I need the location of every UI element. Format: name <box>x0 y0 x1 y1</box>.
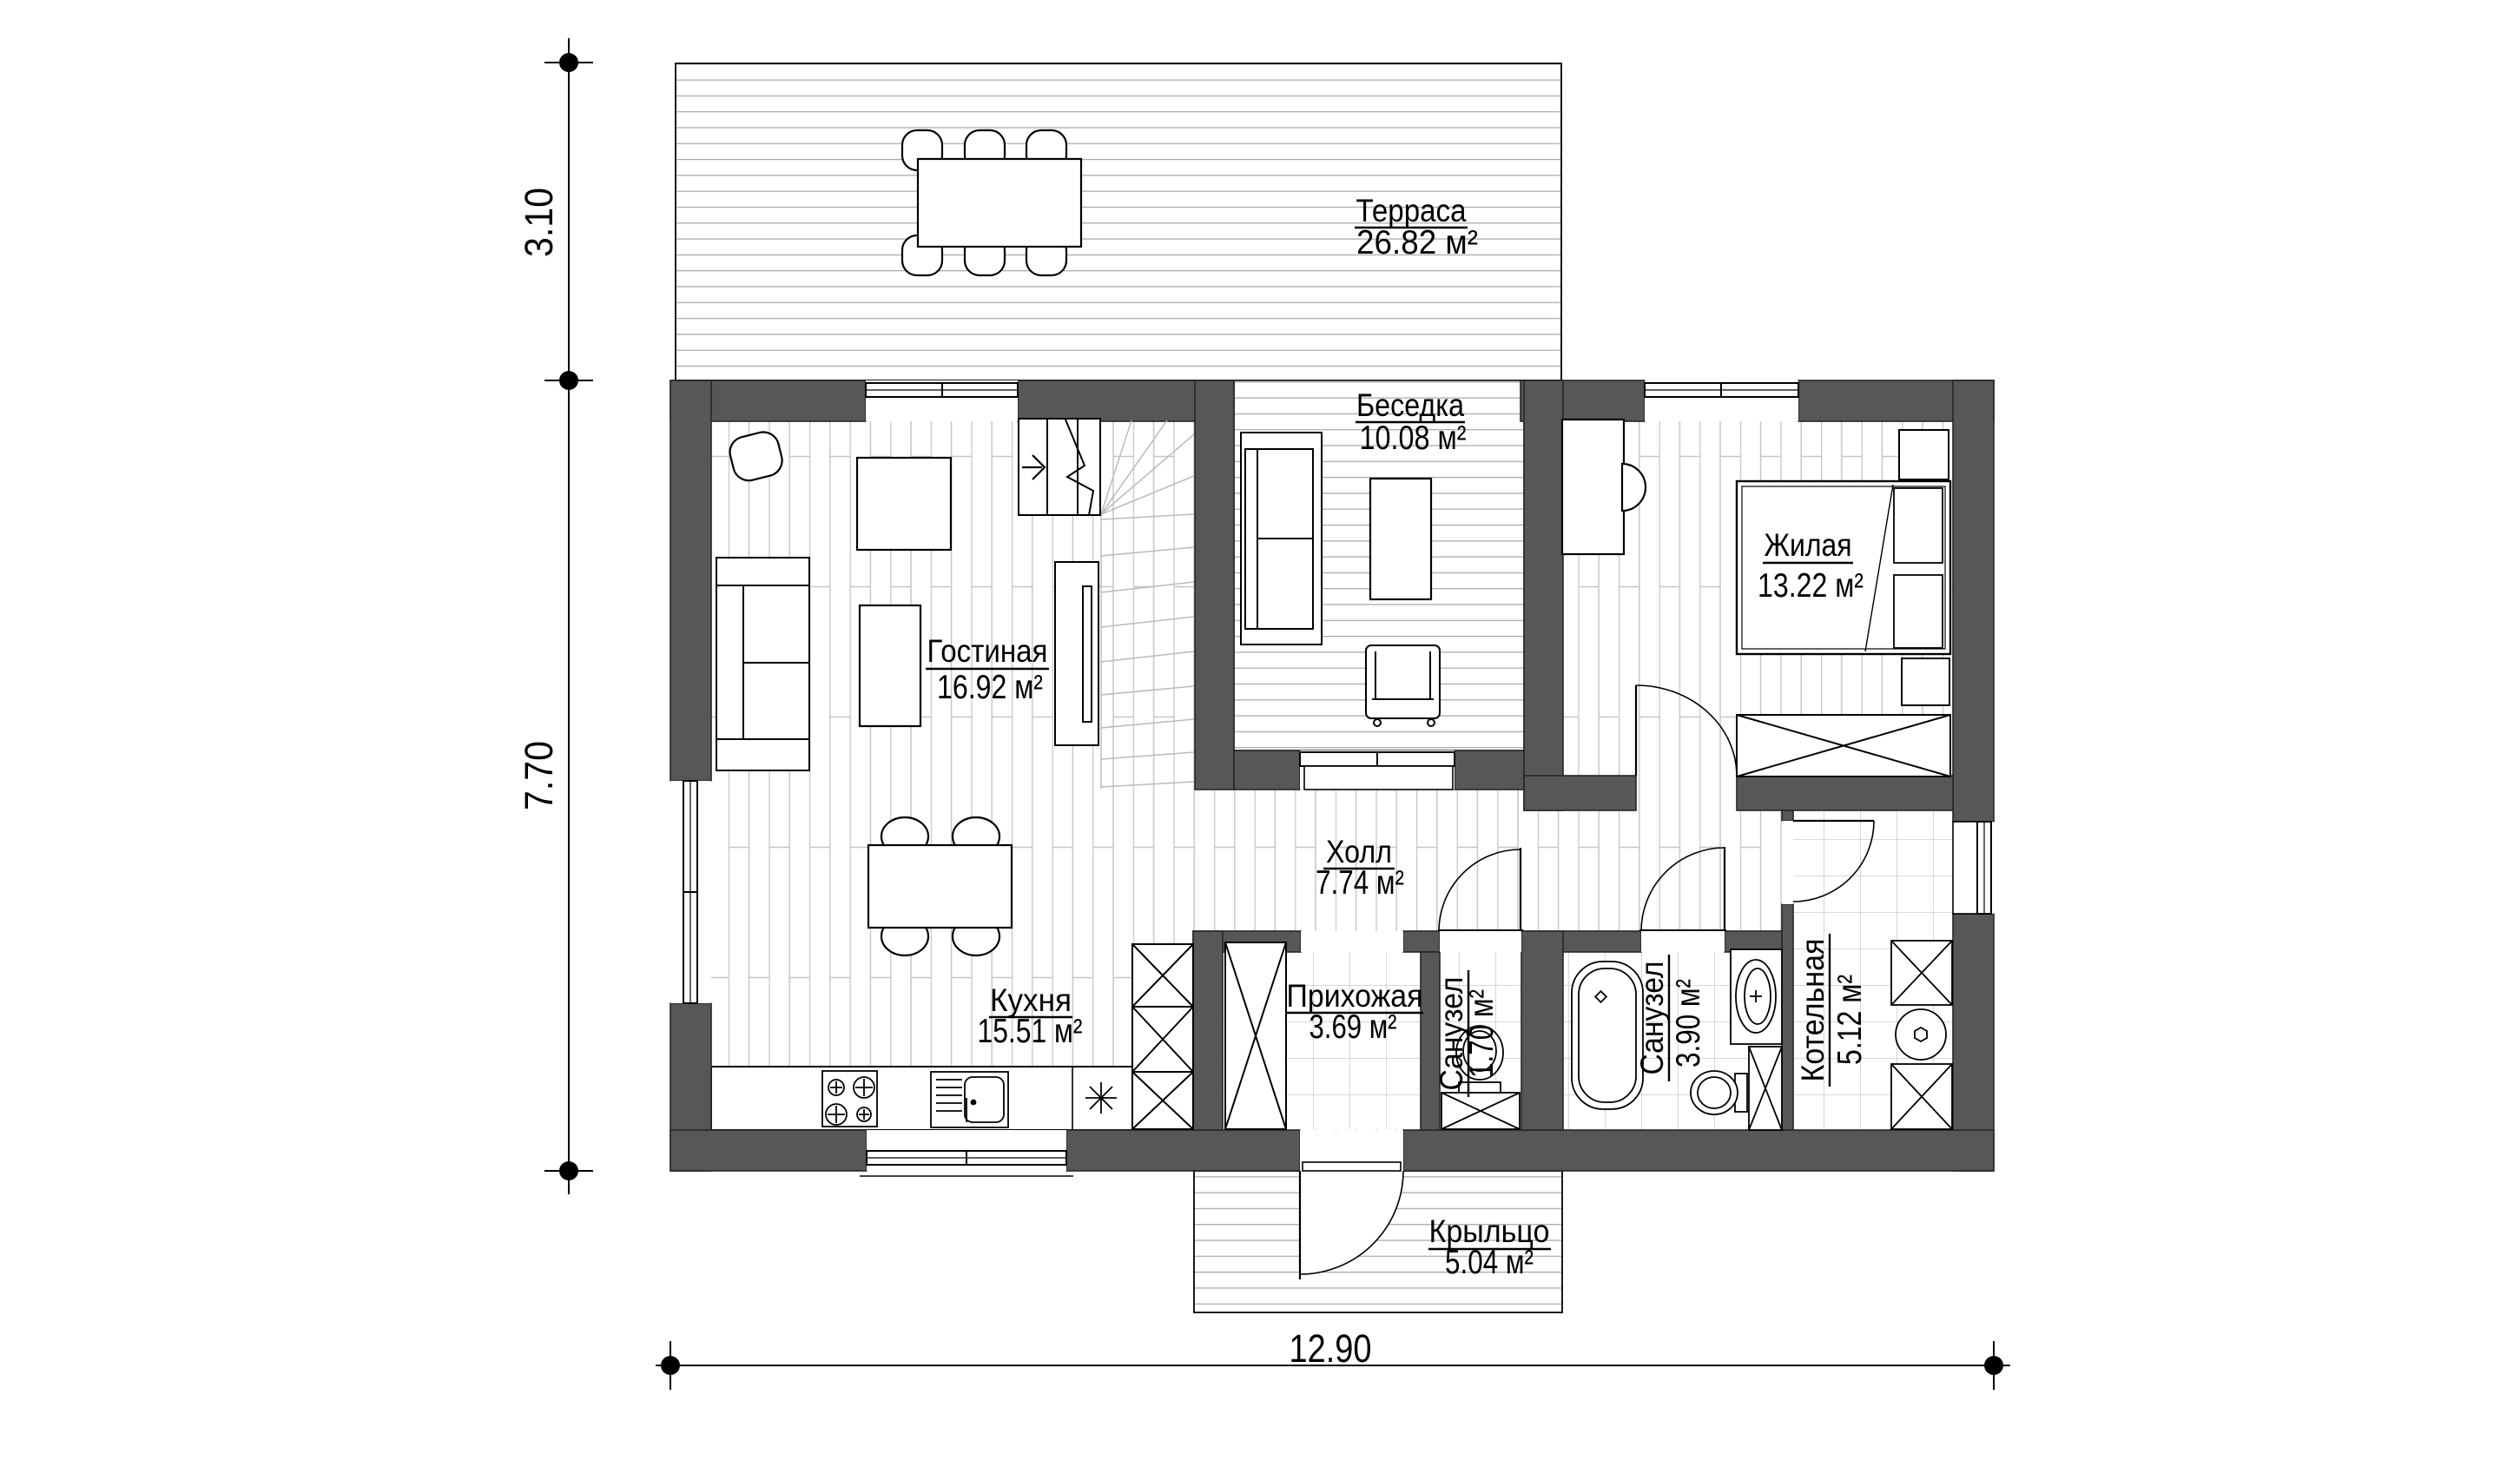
svg-text:10.08 м²: 10.08 м² <box>1360 420 1467 457</box>
svg-text:13.22 м²: 13.22 м² <box>1758 567 1864 605</box>
svg-text:Санузел: Санузел <box>1634 962 1670 1075</box>
svg-text:Беседка: Беседка <box>1356 387 1464 423</box>
svg-text:Котельная: Котельная <box>1795 939 1831 1082</box>
svg-text:3.69 м²: 3.69 м² <box>1309 1008 1397 1046</box>
svg-text:7.74 м²: 7.74 м² <box>1316 864 1404 902</box>
svg-text:12.90: 12.90 <box>1290 1326 1372 1371</box>
svg-text:Гостиная: Гостиная <box>927 633 1048 669</box>
svg-text:Терраса: Терраса <box>1356 193 1467 228</box>
svg-text:5.04 м²: 5.04 м² <box>1445 1244 1534 1281</box>
svg-text:5.12 м²: 5.12 м² <box>1831 975 1869 1065</box>
svg-text:26.82 м²: 26.82 м² <box>1356 224 1478 261</box>
svg-text:3.90 м²: 3.90 м² <box>1670 979 1707 1067</box>
svg-text:16.92 м²: 16.92 м² <box>937 669 1043 706</box>
svg-text:Жилая: Жилая <box>1765 527 1852 563</box>
svg-text:7.70: 7.70 <box>517 741 561 810</box>
svg-text:1.70 м²: 1.70 м² <box>1463 989 1501 1078</box>
svg-text:3.10: 3.10 <box>517 188 561 257</box>
svg-text:15.51 м²: 15.51 м² <box>978 1013 1083 1050</box>
